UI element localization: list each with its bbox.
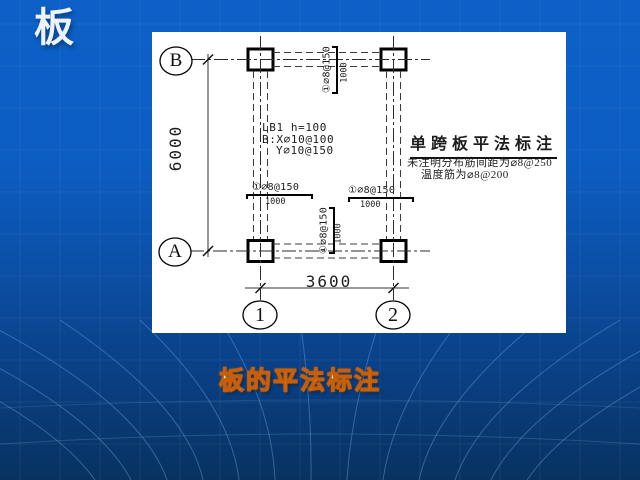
- axis-label-A: A: [159, 238, 191, 266]
- grid-centerlines: [190, 36, 430, 300]
- axis-label-1: 1: [243, 301, 277, 329]
- dimension-horizontal-3600: 3600: [297, 272, 361, 291]
- rebar-extent-bottom: 1000: [333, 219, 344, 249]
- slab-label-line3: Y⌀10@150: [276, 145, 334, 157]
- axis-label-B: B: [160, 47, 192, 75]
- rebar-callout-right: ①⌀8@150: [348, 185, 395, 196]
- rebar-callout-bottom: ①⌀8@150: [318, 201, 331, 261]
- dimension-ticks: [203, 55, 399, 294]
- rebar-extent-top: 1000: [339, 58, 350, 88]
- notes-line2: 温度筋为⌀8@200: [421, 166, 509, 182]
- axis-label-2: 2: [376, 301, 410, 329]
- slide-caption: 板的平法标注: [150, 361, 450, 397]
- background-horizon-arcs: [0, 400, 640, 444]
- presentation-slide[interactable]: 板: [0, 0, 640, 480]
- drawing-panel: B A 1 2 6000 3600 LB1 h=100 B:X⌀10@100 Y…: [152, 32, 566, 333]
- rebar-extent-right: 1000: [360, 200, 380, 210]
- slab-label-line1: LB1 h=100: [262, 122, 334, 134]
- rebar-callout-left: ①⌀8@150: [252, 182, 299, 193]
- slide-title: 板: [34, 6, 74, 50]
- rebar-callout-top: ①⌀8@150: [321, 40, 334, 100]
- slab-label: LB1 h=100 B:X⌀10@100 Y⌀10@150: [262, 122, 334, 157]
- dimension-vertical-6000: 6000: [160, 118, 190, 178]
- dimension-lines: [208, 54, 409, 288]
- rebar-extent-left: 1000: [265, 197, 285, 207]
